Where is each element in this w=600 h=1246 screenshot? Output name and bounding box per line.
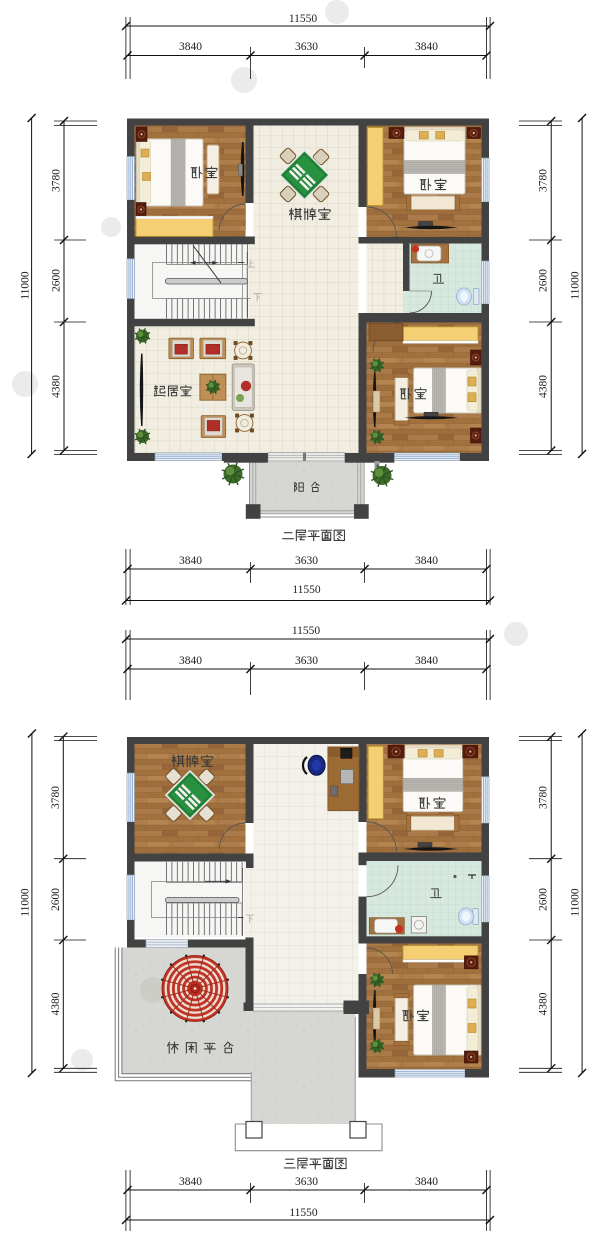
svg-text:4380: 4380 xyxy=(538,992,550,1015)
svg-text:3630: 3630 xyxy=(295,555,318,567)
svg-text:11550: 11550 xyxy=(289,1207,318,1219)
svg-text:4380: 4380 xyxy=(50,992,62,1015)
svg-text:11550: 11550 xyxy=(292,625,321,637)
svg-text:11550: 11550 xyxy=(292,584,321,596)
svg-text:3630: 3630 xyxy=(295,1176,318,1188)
svg-text:2600: 2600 xyxy=(50,888,62,911)
svg-text:4380: 4380 xyxy=(538,375,550,398)
svg-text:3840: 3840 xyxy=(179,655,202,667)
svg-text:11000: 11000 xyxy=(20,271,32,300)
svg-text:3780: 3780 xyxy=(538,169,550,192)
svg-text:11550: 11550 xyxy=(289,13,318,25)
svg-text:11000: 11000 xyxy=(570,271,582,300)
svg-text:2600: 2600 xyxy=(538,888,550,911)
svg-text:3840: 3840 xyxy=(415,655,438,667)
svg-text:11000: 11000 xyxy=(20,888,32,917)
svg-text:3780: 3780 xyxy=(51,169,63,192)
svg-text:3780: 3780 xyxy=(50,786,62,809)
svg-text:3630: 3630 xyxy=(295,655,318,667)
svg-text:3630: 3630 xyxy=(295,41,318,53)
svg-text:3840: 3840 xyxy=(179,41,202,53)
svg-text:11000: 11000 xyxy=(570,888,582,917)
svg-text:3840: 3840 xyxy=(179,1176,202,1188)
svg-text:3840: 3840 xyxy=(415,555,438,567)
svg-text:3840: 3840 xyxy=(179,555,202,567)
svg-text:3840: 3840 xyxy=(415,1176,438,1188)
svg-text:4380: 4380 xyxy=(51,375,63,398)
svg-text:2600: 2600 xyxy=(538,269,550,292)
svg-text:3780: 3780 xyxy=(538,786,550,809)
svg-text:3840: 3840 xyxy=(415,41,438,53)
svg-text:2600: 2600 xyxy=(51,269,63,292)
